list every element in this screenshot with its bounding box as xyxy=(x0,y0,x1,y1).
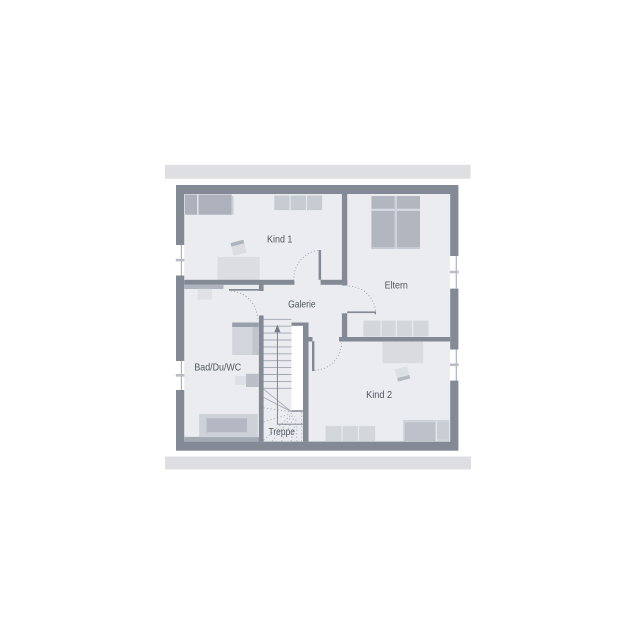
svg-text:Galerie: Galerie xyxy=(288,299,316,310)
svg-text:Kind 1: Kind 1 xyxy=(267,235,293,246)
svg-text:Eltern: Eltern xyxy=(385,281,408,292)
svg-text:Treppe: Treppe xyxy=(269,427,296,438)
svg-text:Bad/Du/WC: Bad/Du/WC xyxy=(194,363,241,374)
svg-text:Kind 2: Kind 2 xyxy=(366,390,392,401)
